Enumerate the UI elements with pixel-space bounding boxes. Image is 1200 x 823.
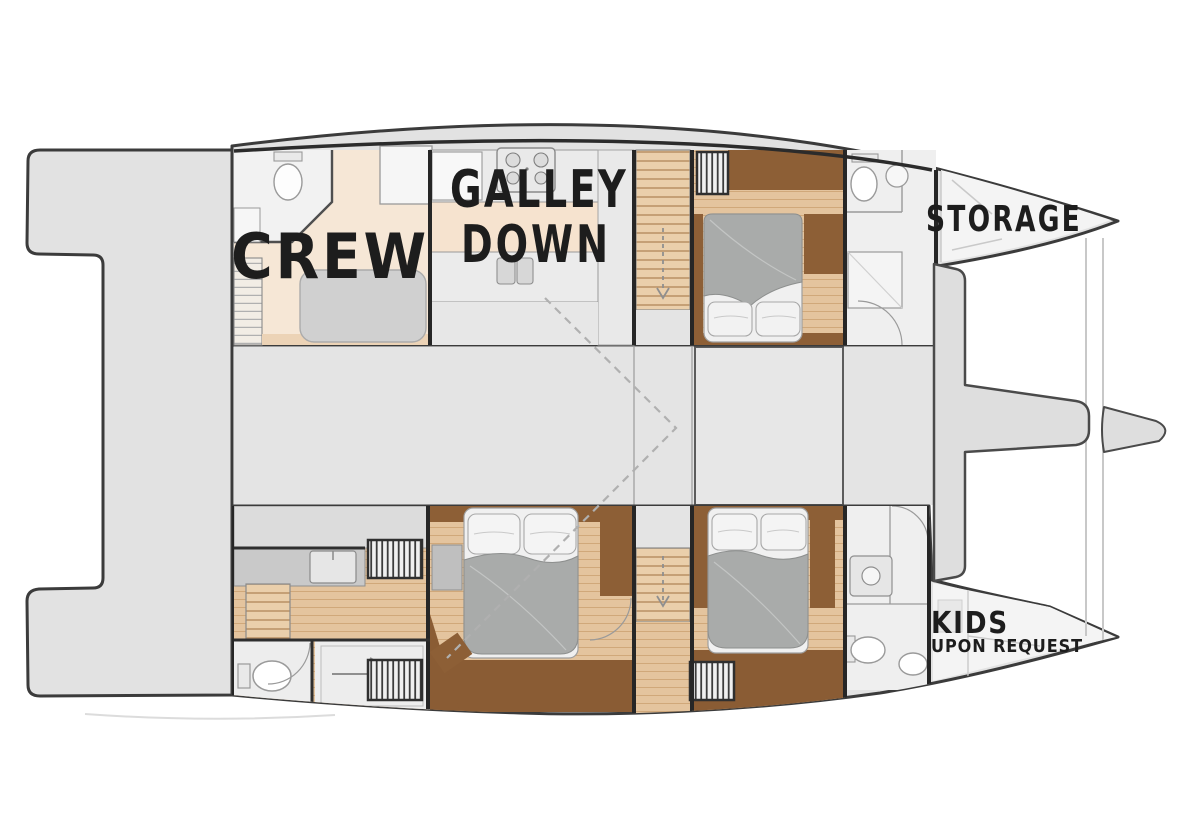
sink-icon xyxy=(886,165,908,187)
master-foot-band xyxy=(430,660,634,712)
landing xyxy=(636,310,690,345)
nightstand xyxy=(432,545,462,590)
engine-panel xyxy=(695,347,843,505)
crew-label: CREW xyxy=(231,220,429,293)
companionway-aft xyxy=(636,506,690,714)
saloon-midship xyxy=(234,347,934,505)
guest-side-right xyxy=(804,214,845,274)
foredeck-beam xyxy=(934,238,1165,640)
toilet-icon xyxy=(274,152,302,200)
starboard-guest-cabin xyxy=(690,506,845,712)
sink-icon xyxy=(310,551,356,583)
galley-aft-deck xyxy=(430,302,598,345)
storage-label: STORAGE xyxy=(926,199,1082,240)
bowsprit xyxy=(1102,407,1165,452)
stern-waterline xyxy=(85,714,335,719)
forward-crossbeam xyxy=(934,264,1089,581)
guest-side-right xyxy=(810,512,835,608)
wardrobe-icon xyxy=(690,662,734,700)
master-cabin xyxy=(430,506,634,712)
master-side-cabinet xyxy=(600,506,634,596)
sink-icon xyxy=(850,556,892,596)
bed-icon xyxy=(708,508,808,653)
bed-icon xyxy=(464,508,578,658)
kids-sub-label: UPON REQUEST xyxy=(931,636,1083,657)
starboard-bathroom xyxy=(845,506,930,690)
galley-label-line2: DOWN xyxy=(461,215,611,275)
guest-side-left xyxy=(692,512,708,608)
wardrobe-icon xyxy=(368,660,422,700)
passage-floor xyxy=(636,622,690,714)
stern-platform-shape xyxy=(27,150,232,696)
starboard-aft-cabin-area xyxy=(234,506,430,718)
forestay-lines xyxy=(1086,238,1103,640)
wardrobe-icon xyxy=(697,152,728,194)
toilet-icon xyxy=(899,653,927,675)
catamaran-deck-plan: CREW GALLEY DOWN STORAGE KIDS UPON REQUE… xyxy=(0,0,1200,823)
deck-plan-svg: CREW GALLEY DOWN STORAGE KIDS UPON REQUE… xyxy=(0,0,1200,823)
landing xyxy=(636,506,690,548)
wardrobe-icon xyxy=(368,540,422,578)
galley-label-line1: GALLEY xyxy=(450,160,628,220)
companionway-forward xyxy=(636,150,690,345)
port-bathroom xyxy=(845,150,936,345)
toilet-icon xyxy=(846,636,885,663)
toilet-icon xyxy=(238,661,291,691)
port-guest-cabin xyxy=(692,150,845,345)
bed-icon xyxy=(704,214,802,342)
crew-closet xyxy=(380,146,432,204)
